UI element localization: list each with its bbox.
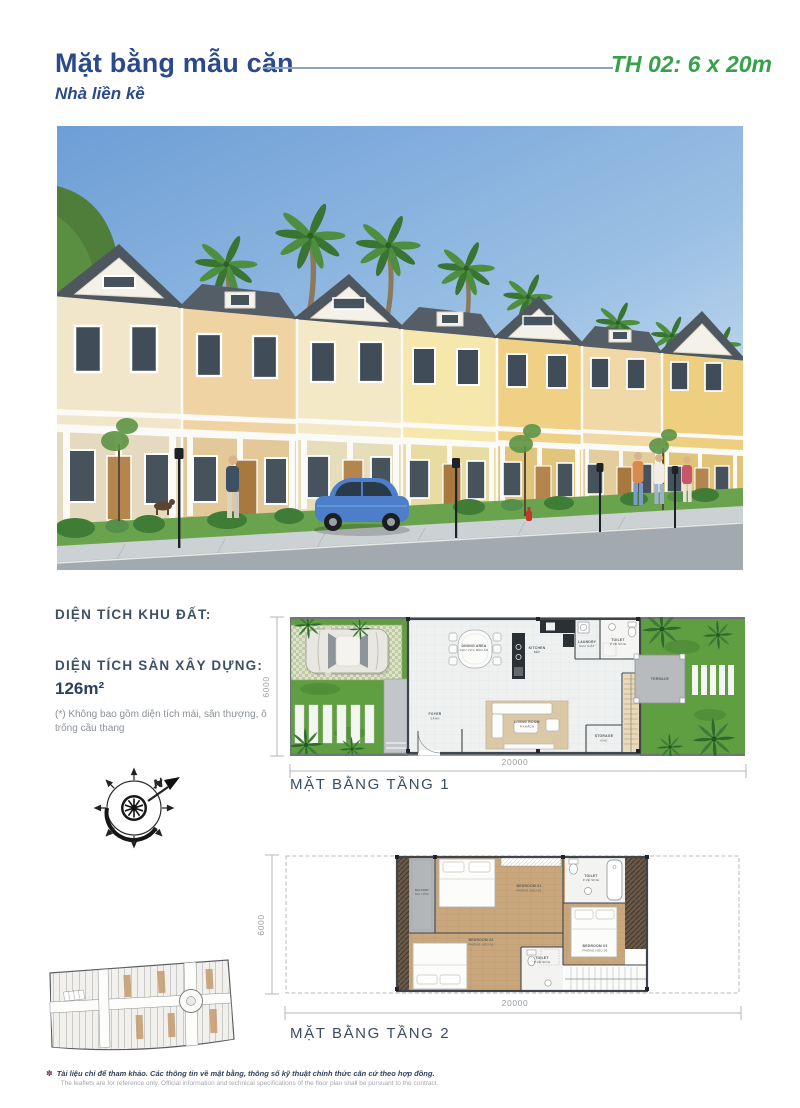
floor1-depth-dim: 6000 [256, 610, 288, 763]
disclaimer-vi: Tài liệu chỉ để tham khảo. Các thông tin… [57, 1069, 439, 1079]
room-label-toilet-vi: P.VỆ SINH [610, 641, 626, 646]
floor2-depth-dim: 6000 [251, 848, 283, 1001]
room-label-storage-vi: KHO [600, 739, 608, 743]
room-label-bed2-vi: PHÒNG NGỦ 02 [468, 942, 493, 947]
floor2-width-dim: 20000 [282, 994, 744, 1020]
floor2-plan: BALCONY BAN CÔNG BEDROOM 01 PHÒNG NGỦ 01… [285, 855, 740, 994]
floor1-width-value: 20000 [502, 757, 529, 767]
room-label-balcony-en: BALCONY [415, 889, 429, 892]
site-mini-map [40, 955, 240, 1055]
room-label-bed1-en: BEDROOM 01 [517, 884, 542, 888]
room-label-storage-en: STORAGE [595, 734, 614, 738]
room-label-foyer-vi: SẢNH [430, 716, 439, 721]
room-label-balcony-vi: BAN CÔNG [415, 893, 429, 896]
hero-rendering [57, 126, 743, 570]
area-footnote: (*) Không bao gồm diện tích mái, sân thư… [55, 708, 280, 735]
room-label-dining-vi: KHU VỰC BÀN ĂN [460, 648, 489, 652]
room-label-living-en: LIVING ROOM [514, 720, 540, 724]
floor2-label: MẶT BẰNG TẦNG 2 [290, 1025, 450, 1042]
floor2-width-value: 20000 [502, 998, 529, 1008]
flower-bullet-icon: ✽ [46, 1070, 53, 1078]
room-label-foyer-en: FOYER [429, 712, 442, 716]
header-divider [263, 67, 613, 69]
unit-type-label: TH 02: 6 x 20m [600, 51, 772, 78]
room-label-toilet1-vi: P.VỆ SINH [583, 877, 599, 882]
room-label-toilet2-vi: P.VỆ SINH [534, 959, 550, 964]
compass-icon: N [92, 760, 202, 855]
floor1-depth-value: 6000 [261, 676, 271, 697]
room-label-terrace-en: TERRACE [651, 677, 670, 681]
car-topview [306, 627, 390, 676]
room-label-kitchen-vi: BẾP [534, 649, 541, 654]
floor2-depth-value: 6000 [256, 914, 266, 935]
floor1-plan: DINING AREA KHU VỰC BÀN ĂN KITCHEN BẾP L… [290, 617, 745, 756]
room-label-bed1-vi: PHÒNG NGỦ 01 [516, 888, 541, 893]
room-label-bed3-vi: PHÒNG NGỦ 03 [582, 948, 607, 953]
room-label-bed3-en: BEDROOM 03 [583, 944, 608, 948]
room-label-laundry-vi: KHU GIẶT [579, 644, 595, 648]
page-subtitle: Nhà liền kề [55, 84, 145, 104]
room-label-living-vi: P.KHÁCH [520, 725, 534, 729]
floor1-label: MẶT BẰNG TẦNG 1 [290, 776, 450, 793]
page-title: Mặt bằng mẫu căn [55, 48, 294, 79]
leaflet-page: Mặt bằng mẫu căn TH 02: 6 x 20m Nhà liền… [0, 0, 800, 1108]
disclaimer-en: The leaflets are for reference only. Off… [57, 1080, 439, 1088]
room-label-bed2-en: BEDROOM 02 [469, 938, 494, 942]
footer-note: ✽ Tài liệu chỉ để tham khảo. Các thông t… [46, 1069, 606, 1088]
